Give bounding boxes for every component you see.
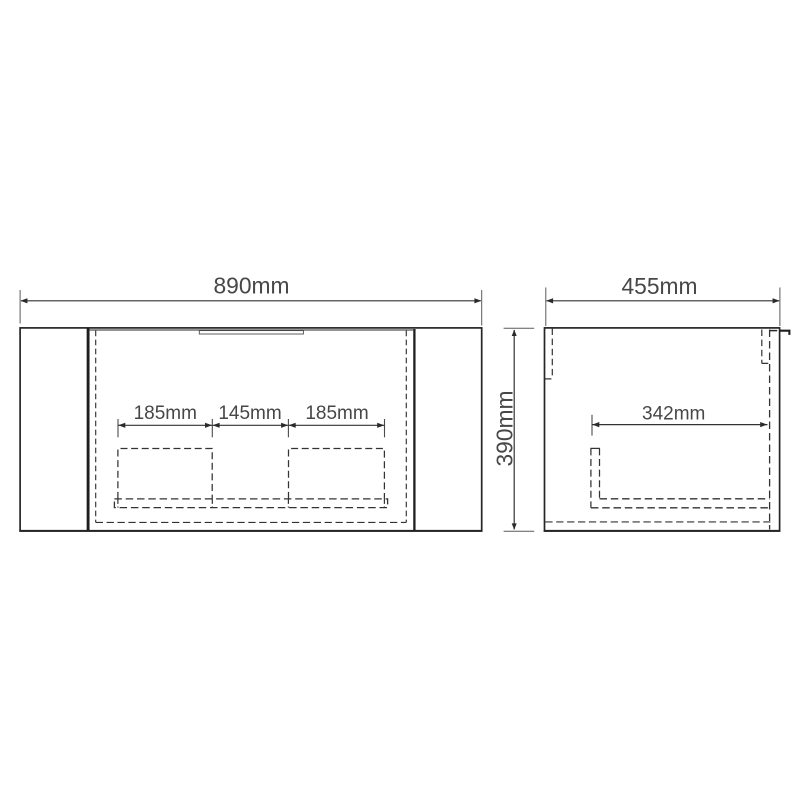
svg-text:342mm: 342mm (642, 404, 705, 425)
svg-text:890mm: 890mm (213, 273, 289, 299)
svg-text:390mm: 390mm (492, 390, 518, 466)
svg-text:185mm: 185mm (134, 403, 197, 424)
svg-text:145mm: 145mm (218, 403, 281, 424)
svg-text:455mm: 455mm (621, 273, 697, 299)
svg-text:185mm: 185mm (305, 403, 368, 424)
